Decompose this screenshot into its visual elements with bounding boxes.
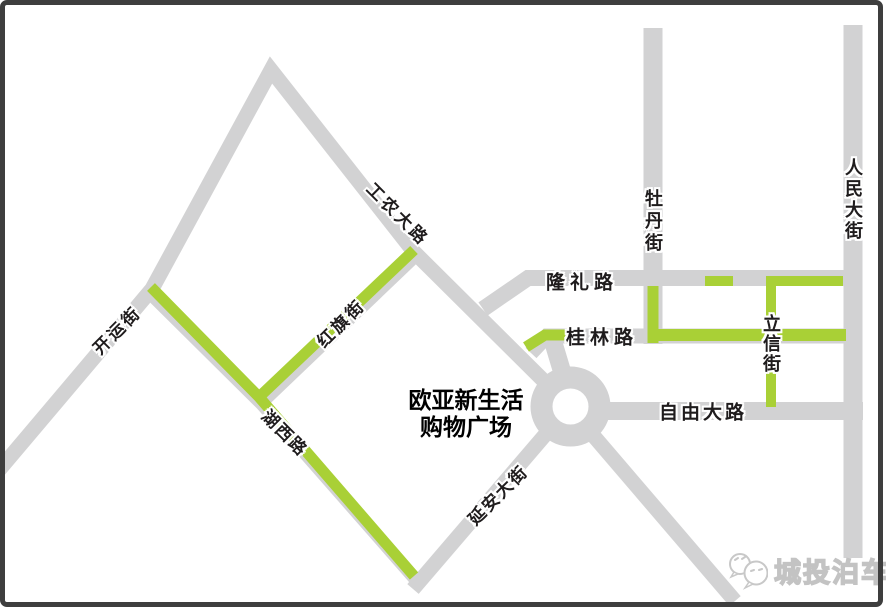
map-canvas: 工农大路 开运街 红旗街 湖西路 延安大街 隆礼路 桂林路 自由大路 牡丹街 人… xyxy=(0,0,886,612)
road-label-longli-lu: 隆礼路 xyxy=(546,268,618,295)
road-label-renmin-dajie: 人民大街 xyxy=(840,158,866,242)
road-label-mudan-jie: 牡丹街 xyxy=(640,189,666,255)
road-label-lixin-jie: 立信街 xyxy=(758,314,784,374)
watermark-brand-text: 城投泊车 xyxy=(774,551,886,590)
road-yanan-se xyxy=(586,427,735,601)
poi-label-ouya-mall: 欧亚新生活 购物广场 xyxy=(409,387,524,441)
poi-label-line2: 购物广场 xyxy=(409,414,524,441)
road-label-guilin-lu: 桂林路 xyxy=(566,323,638,350)
roundabout xyxy=(542,378,600,436)
road-label-ziyou-dalu: 自由大路 xyxy=(659,398,747,425)
poi-label-line1: 欧亚新生活 xyxy=(409,387,524,414)
speech-bubbles-logo-icon xyxy=(722,548,768,592)
watermark: 城投泊车 xyxy=(722,548,886,592)
